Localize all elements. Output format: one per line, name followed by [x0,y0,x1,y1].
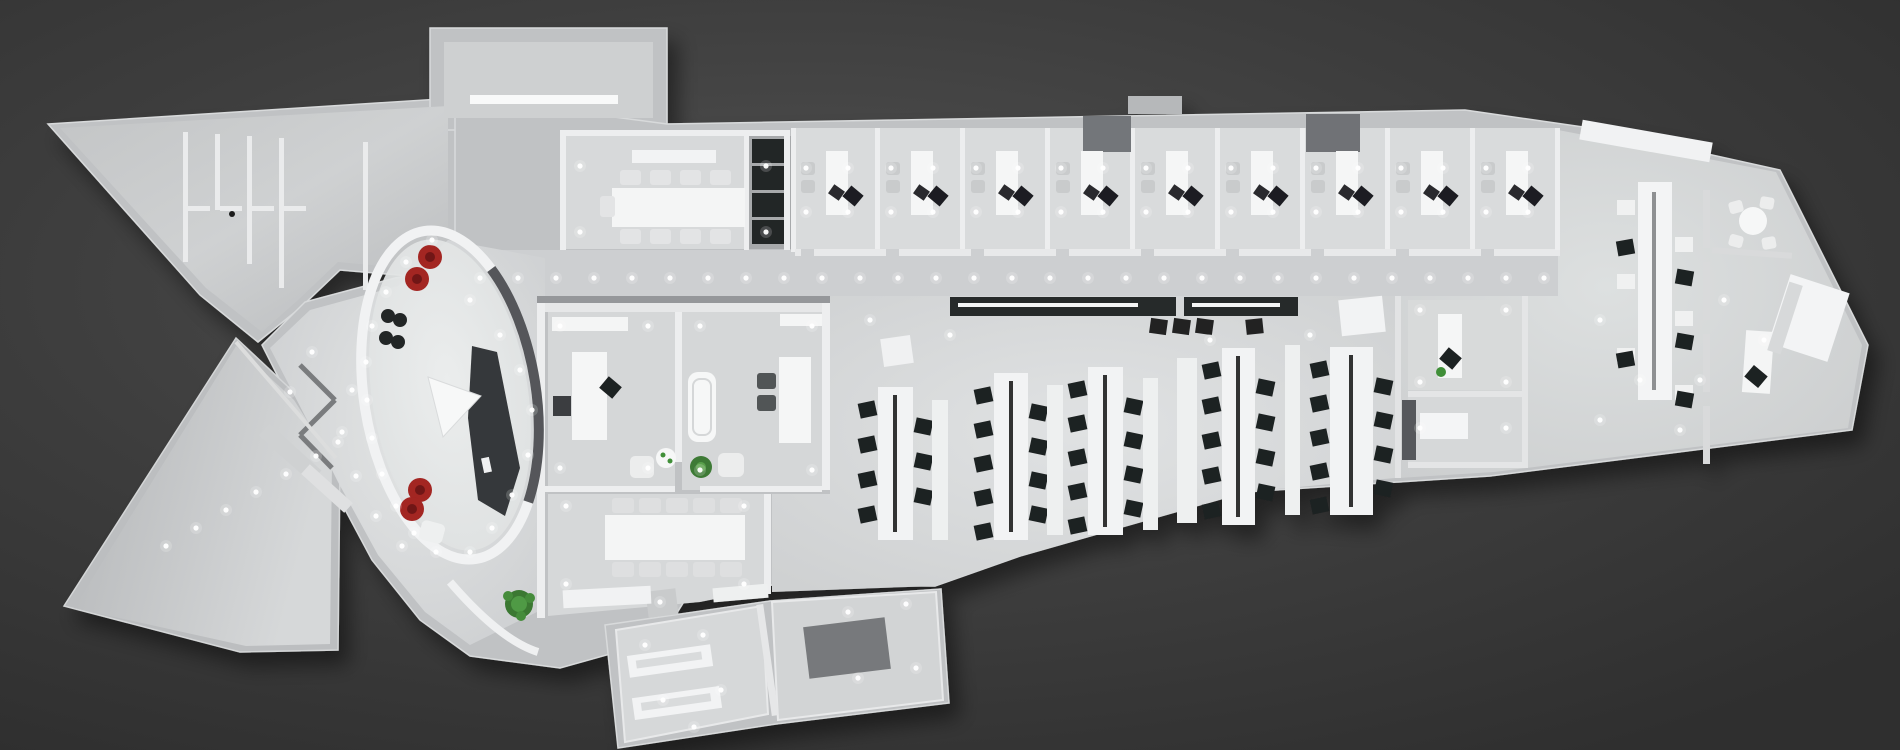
light-annex [715,684,727,696]
light-exec [554,462,566,474]
light-exec [642,462,654,474]
office-guest-chair-2 [886,180,900,193]
light-oval-rim [376,468,388,480]
office-guest-chair-2 [1141,180,1155,193]
light-office [1395,162,1407,174]
meeting-top-chair-upper [620,170,641,185]
light-corridor [1120,272,1132,284]
office-guest-chair-2 [1226,180,1240,193]
light-office [970,206,982,218]
office-desk [826,151,848,215]
wall-wing-stall-door [188,206,210,211]
canteen-chair-left-1 [1616,239,1635,257]
reception-stool-red-4-hole [407,504,417,514]
wall-meeting-top-right [784,132,790,250]
light-atrium [350,470,362,482]
canteen-chair-right-3 [1675,391,1694,409]
breakout-round-table [1739,207,1767,235]
light-office [1522,162,1534,174]
wall-wing-stall-door [284,206,306,211]
reception-stool-black-1 [381,309,395,323]
light-corridor [1006,272,1018,284]
floor-corridor [458,250,1590,296]
reception-stool-black-2 [393,313,407,327]
light-right-section [1694,374,1706,386]
wall-office-divider [1470,128,1475,249]
reception-stool-black-4 [391,335,405,349]
light-open-plan [864,314,876,326]
office-desk [1251,151,1273,215]
light-office [842,206,854,218]
light-corridor [1500,272,1512,284]
light-right-office [1414,304,1426,316]
light-corridor [702,272,714,284]
light-atrium [486,522,498,534]
media-bar-light-left [958,303,1138,307]
light-right-office [1414,376,1426,388]
light-atrium [526,404,538,416]
meeting-top-chair-lower [620,229,641,244]
meeting-top-chair-upper [650,170,671,185]
wall-exec-east [822,303,830,490]
light-corridor [1082,272,1094,284]
light-right-office [1500,422,1512,434]
light-corridor [1272,272,1284,284]
wall-offices-west [791,128,796,252]
wall-office-divider [960,128,965,249]
light-meeting-top [574,160,586,172]
light-atrium [464,294,476,306]
light-office [800,206,812,218]
annex-games-table [803,617,891,679]
canteen-chair-left-2 [1616,351,1635,369]
exec1-decor-green-2 [668,459,673,464]
exec1-round-table [656,448,676,468]
bench-rail-4 [1177,358,1197,523]
light-atrium [306,346,318,358]
lounge-chair-2 [757,395,776,411]
light-corridor [1234,272,1246,284]
light-annex [910,662,922,674]
bench-rail-2 [1047,385,1063,535]
wall-exec-divider [675,312,682,462]
canteen-chair-right-2 [1675,333,1694,351]
right-office-b-desk [1420,413,1468,439]
light-office [1480,162,1492,174]
light-meeting-top [760,226,772,238]
wall-wing-stall-3 [247,136,252,264]
light-office [1225,206,1237,218]
bar-stool-black [1172,318,1191,335]
light-oval-rim [426,234,438,246]
wall-exec-bottom-2 [700,486,822,492]
light-office [1182,206,1194,218]
light-atrium [346,384,358,396]
wall-wing-stall-door [220,206,242,211]
light-corridor [1196,272,1208,284]
light-meeting-lower [560,578,572,590]
light-corridor [512,272,524,284]
meeting-lower-table [605,515,745,560]
light-atrium [494,329,506,341]
light-office [1310,206,1322,218]
wall-office-door-gap [1396,249,1409,256]
lounge-chair-1 [757,373,776,389]
bench-desk-b-spine [1009,381,1013,532]
lounge-desk [779,357,811,443]
meeting-top-chair-end [600,196,615,217]
floor-top-annex-room [444,42,653,118]
light-terrace [250,486,262,498]
light-right-section [1594,414,1606,426]
light-atrium [506,489,518,501]
wall-office-door-gap [971,249,984,256]
meeting-lower-chair-upper [612,498,634,513]
light-office [1055,206,1067,218]
wall-office-divider [1215,128,1220,249]
light-open-plan [1304,329,1316,341]
light-office [927,162,939,174]
office-desk [911,151,933,215]
wall-meeting-top-left [560,132,566,250]
light-office [885,206,897,218]
light-office [1012,206,1024,218]
light-office [1480,206,1492,218]
storage-shelf-unit [752,193,784,217]
light-corridor [1044,272,1056,284]
light-meeting-lower [738,578,750,590]
canteen-chair-right-1 [1675,269,1694,287]
light-exec [806,320,818,332]
light-office [1352,162,1364,174]
light-office [1267,162,1279,174]
light-atrium [514,364,526,376]
light-oval-rim [390,500,402,512]
light-office [1140,162,1152,174]
light-corridor [778,272,790,284]
wall-annex-skylight [470,95,618,104]
wall-office-door-gap [1226,249,1239,256]
office-guest-chair-2 [1311,180,1325,193]
meeting-lower-chair-lower [693,562,715,577]
wall-wing-stall-2 [215,134,220,210]
exec1-desk [572,352,607,440]
light-office [1225,162,1237,174]
light-oval-rim [360,356,372,368]
office-guest-chair-2 [1396,180,1410,193]
wall-offices-east [1555,128,1560,250]
light-atrium [396,540,408,552]
office-desk [1166,151,1188,215]
open-plan-crate [880,335,914,367]
light-corridor [1462,272,1474,284]
canteen-bench-right [1675,237,1693,252]
light-office [1097,162,1109,174]
light-atrium [284,386,296,398]
meeting-lower-chair-lower [612,562,634,577]
wall-office-divider [875,128,880,249]
wall-exec-top-shadow [537,296,830,303]
wall-rooftop-unit-2 [1306,114,1360,152]
light-meeting-top [760,160,772,172]
light-terrace [280,468,292,480]
office-desk [1081,151,1103,215]
wing-sink [229,211,235,217]
light-terrace [160,540,172,552]
light-annex [900,598,912,610]
office-desk [1336,151,1358,215]
light-office [885,162,897,174]
atrium-plant-leaf-3 [516,611,526,621]
light-oval-rim [366,320,378,332]
office-desk [1421,151,1443,215]
light-corridor [740,272,752,284]
light-office [1437,162,1449,174]
light-right-office [1500,376,1512,388]
light-office [1437,206,1449,218]
light-annex [697,629,709,641]
wall-office-door-gap [1056,249,1069,256]
light-corridor [930,272,942,284]
meeting-top-chair-upper [680,170,701,185]
storage-shelf-unit [752,139,784,163]
lounge-armchair [718,453,744,477]
light-atrium [370,510,382,522]
light-meeting-top [574,226,586,238]
light-office [1097,206,1109,218]
light-open-plan [1204,334,1216,346]
media-bar-light-right [1192,303,1280,307]
light-oval-rim [400,256,412,268]
light-office [927,206,939,218]
bar-stool-black [1195,318,1214,335]
atrium-plant-leaf-2 [525,593,535,603]
light-oval-rim [430,546,442,558]
light-atrium [522,449,534,461]
wall-wing-stall-1 [183,132,188,262]
canteen-bench-left [1617,200,1635,215]
light-corridor [550,272,562,284]
light-corridor [816,272,828,284]
bench-rail-5 [1285,345,1300,515]
light-corridor [1386,272,1398,284]
light-right-section [1674,424,1686,436]
meeting-top-sideboard [632,150,716,163]
light-corridor [1310,272,1322,284]
light-annex [639,639,651,651]
light-office [1352,206,1364,218]
bench-desk-c-spine [1103,375,1107,527]
wall-office-divider [1385,128,1390,249]
wall-open-plan-east [1395,296,1401,478]
light-right-office [1500,304,1512,316]
light-corridor [1158,272,1170,284]
light-office [1522,206,1534,218]
light-open-plan [944,329,956,341]
light-exec [554,320,566,332]
meeting-lower-chair-upper [666,498,688,513]
meeting-top-chair-lower [680,229,701,244]
light-annex [657,694,669,706]
canteen-bench-left [1617,274,1635,289]
exec1-side-table [553,396,571,416]
wall-rooftop-unit-1 [1083,116,1131,152]
light-corridor [588,272,600,284]
light-exec [694,320,706,332]
wall-wing-stall-door [252,206,274,211]
light-right-section [1758,334,1770,346]
reception-stool-red-1-hole [425,252,435,262]
light-right-section [1718,294,1730,306]
light-terrace [220,504,232,516]
light-oval-rim [380,286,392,298]
reception-stool-red-2-hole [412,274,422,284]
atrium-plant-inner [511,596,527,612]
exec1-decor-green-1 [661,453,666,458]
meeting-top-table [612,188,745,227]
office-guest-chair-2 [1481,180,1495,193]
wall-exec-bottom-1 [545,486,675,492]
wall-right-offices-east [1522,296,1528,468]
light-exec [806,464,818,476]
wall-right-offices-bottom [1408,462,1522,468]
light-corridor [474,272,486,284]
office-guest-chair-2 [971,180,985,193]
light-corridor [854,272,866,284]
right-office-a-plant [1436,367,1446,377]
light-office [970,162,982,174]
wall-office-door-gap [801,249,814,256]
light-meeting-lower [560,500,572,512]
wall-wing-stall-5 [363,142,368,290]
breakout-chair-4 [1761,236,1777,250]
office-guest-chair-2 [1056,180,1070,193]
light-office [1395,206,1407,218]
meeting-top-chair-lower [710,229,731,244]
wall-office-door-gap [886,249,899,256]
light-annex [852,672,864,684]
office-desk [996,151,1018,215]
meeting-lower-chair-upper [693,498,715,513]
bench-desk-a-spine [893,395,897,532]
light-corridor [968,272,980,284]
copier-cabinet [1338,296,1386,336]
screenshot-root [0,0,1900,750]
light-office [1012,162,1024,174]
light-meeting-lower [738,500,750,512]
wall-office-divider [1045,128,1050,249]
light-corridor [626,272,638,284]
office-desk [1506,151,1528,215]
office-guest-chair-2 [801,180,815,193]
bench-desk-d-spine [1236,356,1240,517]
wall-canteen-partition [1703,262,1710,320]
light-office [842,162,854,174]
wall-right-offices-mid [1408,391,1522,397]
canteen-bench-right [1675,311,1693,326]
light-corridor [1538,272,1550,284]
light-office [1055,162,1067,174]
light-annex [688,721,700,733]
light-oval-rim [408,527,420,539]
light-corridor [892,272,904,284]
light-right-section [1634,374,1646,386]
floorplan-svg [0,0,1900,750]
canteen-table-runner [1652,192,1656,390]
wall-meeting-lower-east [764,494,771,594]
wall-office-door-gap [1311,249,1324,256]
reception-stool-black-3 [379,331,393,345]
meeting-lower-chair-lower [639,562,661,577]
light-exec [694,464,706,476]
light-right-office [1414,422,1426,434]
wall-offices-front [795,249,1560,256]
light-terrace [332,436,344,448]
light-corridor [1348,272,1360,284]
wall-canteen-partition [1703,406,1710,464]
bench-rail-1 [932,400,948,540]
light-office [1140,206,1152,218]
bar-stool-black-far [1245,318,1263,335]
meeting-lower-chair-lower [666,562,688,577]
light-right-section [1594,314,1606,326]
wall-office-divider [1300,128,1305,249]
light-annex [842,606,854,618]
wall-exec-top [537,303,830,312]
right-office-b-cabinet [1402,400,1416,460]
light-office [1182,162,1194,174]
light-office [800,162,812,174]
light-atrium [464,546,476,558]
wall-wing-stall-4 [279,138,284,288]
mass-roof-nub [1128,96,1182,114]
light-corridor [664,272,676,284]
light-terrace [310,450,322,462]
light-meeting-lower [654,596,666,608]
wall-office-door-gap [1481,249,1494,256]
meeting-lower-chair-lower [720,562,742,577]
bar-stool-black [1149,318,1168,335]
wall-office-door-gap [1141,249,1154,256]
light-office [1310,162,1322,174]
wall-meeting-top-head [560,130,790,136]
meeting-lower-chair-upper [639,498,661,513]
light-exec [642,320,654,332]
breakout-chair-2 [1759,196,1775,210]
meeting-top-chair-lower [650,229,671,244]
bench-rail-3 [1143,378,1158,530]
light-office [1267,206,1279,218]
wall-canteen-partition [1703,190,1710,248]
light-oval-rim [366,432,378,444]
atrium-plant-leaf-1 [503,591,513,601]
light-corridor [1424,272,1436,284]
light-terrace [190,522,202,534]
light-oval-rim [361,394,373,406]
meeting-top-chair-upper [710,170,731,185]
bench-desk-e-spine [1349,355,1353,507]
reception-stool-red-3-hole [415,485,425,495]
